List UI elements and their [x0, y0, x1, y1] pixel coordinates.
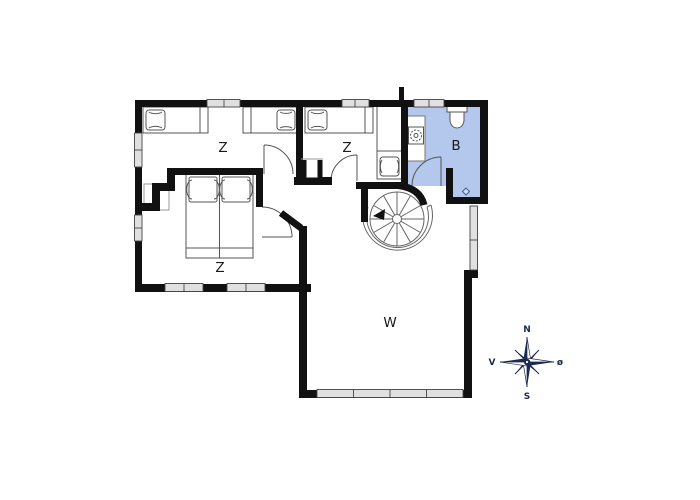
closet [301, 159, 323, 180]
compass-label-west: V [489, 358, 496, 368]
compass-label-north: N [523, 325, 531, 335]
window [414, 100, 444, 108]
window [227, 284, 265, 292]
window [135, 215, 143, 241]
window [317, 390, 463, 398]
room-label-bedroom-bottom-left: Z [215, 260, 224, 276]
door-arc [331, 155, 357, 181]
compass-label-south: S [524, 392, 530, 402]
single-bed [243, 107, 298, 133]
window [470, 206, 478, 270]
sink-counter [407, 116, 425, 161]
floor-plan-drawing: Z Z Z B W [0, 0, 700, 500]
room-label-bathroom: B [451, 138, 460, 154]
door-arc [264, 145, 293, 174]
single-bed [377, 106, 402, 179]
floor-plan-page: Z Z Z B W [0, 0, 700, 500]
window [207, 100, 240, 108]
single-bed [143, 107, 208, 133]
room-label-bedroom-top-left: Z [218, 140, 227, 156]
window [135, 133, 143, 167]
window [165, 284, 203, 292]
double-bed [183, 169, 256, 258]
compass-rose: N S V ø [489, 325, 564, 402]
room-label-bedroom-top-middle: Z [342, 140, 351, 156]
room-label-living-room: W [383, 315, 396, 331]
window [342, 100, 369, 108]
single-bed [305, 107, 373, 133]
compass-label-east: ø [557, 358, 563, 368]
